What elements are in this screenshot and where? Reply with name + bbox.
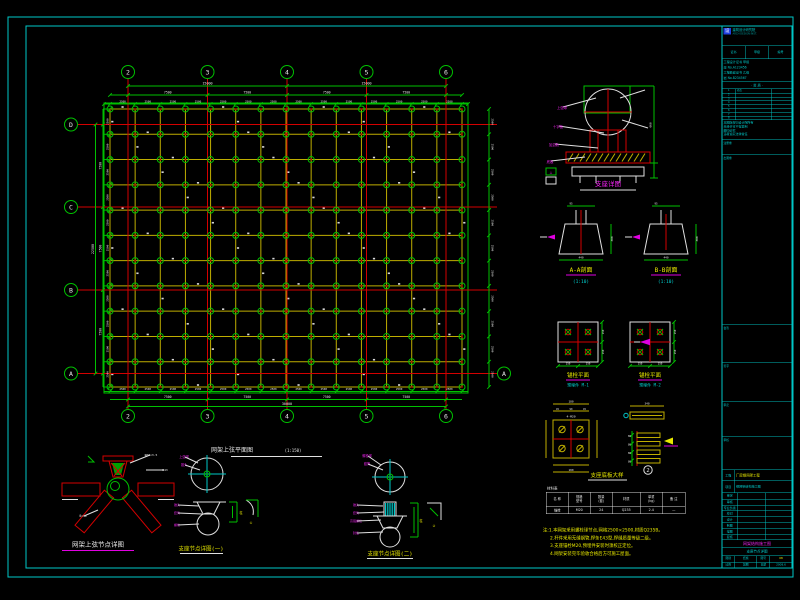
- member-label: [297, 283, 299, 285]
- plan-title: 网架上弦平面图: [211, 446, 253, 454]
- staff-row: 描图: [722, 528, 792, 534]
- axis-label: 2: [126, 68, 130, 76]
- detail-title: 锚栓平面: [639, 371, 662, 379]
- dim-text: 95: [654, 202, 658, 206]
- cad-circle: [639, 331, 640, 332]
- node-center: [361, 209, 363, 211]
- cad-circle: [567, 331, 568, 332]
- table-header-cell: 备 注: [662, 492, 685, 506]
- dim-text: 7500: [99, 328, 103, 336]
- member-label: [348, 131, 350, 133]
- dim-text: 2500: [421, 387, 428, 391]
- axis-label: 2: [126, 412, 130, 420]
- node-center: [285, 209, 287, 211]
- stamp-label: 审核: [722, 437, 792, 442]
- cad-circle: [659, 351, 660, 352]
- bolt-shaft-hatch: [386, 503, 395, 516]
- plan-scale: (1:150): [285, 448, 302, 453]
- cad-circle: [587, 331, 588, 332]
- ball-node: [380, 527, 400, 547]
- node-center: [210, 361, 212, 363]
- node-center: [386, 184, 388, 186]
- node-center: [335, 361, 337, 363]
- node-center: [461, 133, 463, 135]
- notice-line: 违者追究法律责任: [724, 133, 791, 137]
- bottom-label: 图别: [722, 556, 735, 562]
- dim-text: 2500: [144, 387, 151, 391]
- axis-label: 3: [206, 412, 210, 420]
- cad-line: [598, 154, 603, 162]
- node-center: [134, 209, 136, 211]
- member-label: [222, 207, 224, 209]
- stiffener-rib: [637, 433, 660, 438]
- node-center: [260, 234, 262, 236]
- table-header-cell: 单重 (kg): [640, 492, 662, 506]
- axis-label: 4: [285, 68, 289, 76]
- member-label: [111, 121, 113, 123]
- detail-support-elevation: 上弦球 十字板 加劲肋 底板 △ 660 支座详图: [546, 86, 658, 190]
- dim-text: 2500: [371, 100, 378, 104]
- node-center: [411, 108, 413, 110]
- member-label: [438, 323, 440, 325]
- revision-row: 2: [722, 93, 792, 97]
- dim-text: 2500: [491, 270, 495, 277]
- node-center: [461, 184, 463, 186]
- node-center: [436, 310, 438, 312]
- member-label: [463, 222, 465, 224]
- member-label: [413, 171, 415, 173]
- dim-text: 2500: [295, 100, 302, 104]
- titleblock: 设建筑设计研究院ARCH DESIGN INST.证书甲级编号工程设计证书 甲级…: [722, 26, 792, 568]
- axis-bubble: 2: [122, 410, 135, 423]
- member-label: [323, 308, 325, 310]
- detail-support-node-2: 螺栓球 套筒 锥头 套筒 高强螺栓 封板 柱 ② 支座节点详图(二): [350, 453, 441, 559]
- leader-label: 锥头: [181, 462, 188, 467]
- node-center: [386, 386, 388, 388]
- detail-subtitle: 预埋件 M-1: [567, 382, 589, 388]
- titleblock-notice: 本图版权归设计院所有未经许可不得复制翻印必究违者追究法律责任: [722, 120, 792, 140]
- member-label: [161, 298, 163, 300]
- cert-cell: 编号: [769, 46, 793, 59]
- member-label: [136, 146, 138, 148]
- revision-row: 3: [722, 97, 792, 101]
- member-label: [272, 157, 274, 159]
- titleblock-drawing-title: 网架结构施工图: [722, 540, 792, 548]
- revision-row: 1修改: [722, 89, 792, 93]
- dim-text: 2500: [195, 387, 202, 391]
- material-table: 材料表 名 称规格 型号数量 (套)材质单重 (kg)备 注 锚栓M2024Q2…: [546, 486, 698, 528]
- node-center: [310, 159, 312, 161]
- node-center: [335, 285, 337, 287]
- member-label: [363, 121, 365, 123]
- bottom-label: 图号: [757, 556, 770, 562]
- member-label: [262, 146, 264, 148]
- stamp-label: 会签: [722, 325, 792, 330]
- node-center: [310, 285, 312, 287]
- node-center: [310, 108, 312, 110]
- node-center: [210, 260, 212, 262]
- dim-text: 150: [601, 329, 605, 334]
- member-label: [323, 207, 325, 209]
- node-center: [260, 361, 262, 363]
- dim-text: 2500: [106, 270, 110, 277]
- detail-title: 锚栓平面: [567, 371, 590, 379]
- project-value: 厂房钢网架工程: [735, 470, 792, 481]
- node-center: [335, 108, 337, 110]
- note-line: 4.网架安装完毕验收合格后方可施工屋面。: [543, 550, 717, 558]
- node-center: [335, 209, 337, 211]
- member-label: [312, 323, 314, 325]
- member-label: [247, 233, 249, 235]
- member-label: [448, 334, 450, 336]
- staff-row: 审核: [722, 499, 792, 505]
- dim-text: 2500: [421, 100, 428, 104]
- detail-title: 支座节点详图(一): [178, 545, 223, 553]
- titleblock-stamp-box: 审核: [722, 437, 792, 470]
- member-label: [373, 157, 375, 159]
- node-center: [461, 234, 463, 236]
- node-center: [436, 336, 438, 338]
- node-center: [134, 133, 136, 135]
- node-center: [185, 310, 187, 312]
- dim-text: 7500: [99, 162, 103, 170]
- node-center: [285, 159, 287, 161]
- titleblock-cert-cells: 证书甲级编号: [722, 46, 792, 59]
- node-center: [361, 159, 363, 161]
- node-center: [159, 184, 161, 186]
- node-center: [159, 336, 161, 338]
- dim-text: 7500: [402, 90, 410, 94]
- stiffener-rib: [637, 442, 660, 447]
- table-cell: 24: [590, 506, 612, 514]
- member-label: [413, 298, 415, 300]
- dim-text: 90: [570, 408, 573, 411]
- member-label: [111, 247, 113, 249]
- bottom-label: 日期: [757, 563, 770, 569]
- node-center: [335, 234, 337, 236]
- node-center: [361, 361, 363, 363]
- axis-label: A: [502, 370, 506, 378]
- node-center: [134, 184, 136, 186]
- detail-scale: (1:10): [573, 279, 589, 285]
- node-center: [361, 386, 363, 388]
- bottom-value: 如图: [735, 563, 757, 569]
- member-label: [161, 171, 163, 173]
- dim-text: 300: [610, 236, 614, 241]
- leader-label: 套筒: [364, 461, 370, 466]
- node-center: [411, 209, 413, 211]
- dim-text: 2500: [320, 100, 327, 104]
- detail-title: A-A剖面: [570, 266, 593, 274]
- detail-title: 支座节点详图(二): [367, 550, 412, 558]
- node-center: [411, 386, 413, 388]
- axis-bubble: B: [65, 284, 78, 297]
- axis-label: 4: [285, 412, 289, 420]
- node-center: [436, 285, 438, 287]
- node-center: [210, 108, 212, 110]
- detail-lower-chord-node: φ60×3.5 E43 δ=10 网架上弦节点详图: [62, 453, 174, 551]
- leader-label: δ=10: [79, 514, 86, 518]
- node-center: [260, 285, 262, 287]
- node-center: [285, 108, 287, 110]
- node-center: [134, 386, 136, 388]
- member-label: [147, 233, 149, 235]
- dim-text: 15000: [202, 81, 212, 85]
- node-center: [411, 159, 413, 161]
- member-label: [363, 247, 365, 249]
- member-label: [247, 334, 249, 336]
- node-center: [134, 260, 136, 262]
- revision-row: 7: [722, 112, 792, 116]
- cert-cell: 证书: [722, 46, 745, 59]
- dim-text: 300: [695, 236, 699, 241]
- node-center: [310, 386, 312, 388]
- axis-bubble: 6: [440, 66, 453, 79]
- member-label: [448, 233, 450, 235]
- titleblock-grade-divider: · 资 质 ·: [722, 82, 792, 89]
- member-label: [297, 182, 299, 184]
- leader-label: 上弦球: [557, 105, 568, 110]
- detail-subtitle: 预埋件 M-2: [639, 382, 661, 388]
- dim-text: 2500: [491, 144, 495, 151]
- node-center: [386, 159, 388, 161]
- node-center: [436, 159, 438, 161]
- member-label: [373, 359, 375, 361]
- dim-text: 2500: [195, 100, 202, 104]
- revision-row: 5: [722, 105, 792, 109]
- dim-text: 150: [638, 362, 643, 366]
- dim-text: 2500: [320, 387, 327, 391]
- member-label: [187, 197, 189, 199]
- axis-bubble: 3: [201, 66, 214, 79]
- dim-text: 2500: [245, 387, 252, 391]
- node-center: [285, 336, 287, 338]
- member-label: [423, 207, 425, 209]
- plan-view: 2233445566DCBAA1500015000750075007500750…: [65, 66, 511, 423]
- detail-section-aa: 95 300 440 A-A剖面 (1:10): [540, 202, 614, 285]
- node-center: [185, 108, 187, 110]
- dim-text: 660: [649, 122, 653, 127]
- node-center: [235, 209, 237, 211]
- node-center: [285, 361, 287, 363]
- node-center: [235, 234, 237, 236]
- node-center: [285, 386, 287, 388]
- table-header-cell: 材质: [612, 492, 640, 506]
- leader-label: 底板: [547, 159, 554, 164]
- node-center: [210, 310, 212, 312]
- bracket-label: 柱: [239, 510, 243, 515]
- node-center: [235, 133, 237, 135]
- dim-text: 2500: [491, 295, 495, 302]
- axis-bubble: 2: [122, 66, 135, 79]
- member-label: [423, 106, 425, 108]
- node-center: [134, 310, 136, 312]
- node-center: [411, 234, 413, 236]
- dim-text: 7500: [164, 395, 172, 399]
- cad-line: [628, 154, 633, 162]
- axis-label: 5: [365, 412, 369, 420]
- axis-bubble: D: [65, 118, 78, 131]
- dim-text: 2500: [396, 100, 403, 104]
- node-center: [436, 260, 438, 262]
- axis-bubble: 3: [201, 410, 214, 423]
- dim-text: 2500: [245, 100, 252, 104]
- node-center: [310, 361, 312, 363]
- node-center: [285, 234, 287, 236]
- titleblock-project: 工程厂房钢网架工程: [722, 470, 792, 481]
- node-center: [361, 234, 363, 236]
- axis-bubble: 6: [440, 410, 453, 423]
- axis-bubble: 4: [281, 410, 294, 423]
- dim-text: 2500: [119, 387, 126, 391]
- node-center: [159, 209, 161, 211]
- node-center: [310, 260, 312, 262]
- staff-row: 校对: [722, 511, 792, 517]
- dim-text: 2500: [144, 100, 151, 104]
- node-center: [310, 133, 312, 135]
- node-center: [411, 361, 413, 363]
- node-center: [310, 336, 312, 338]
- node-center: [260, 108, 262, 110]
- node-center: [411, 336, 413, 338]
- dim-text: 7500: [243, 395, 251, 399]
- node-center: [310, 184, 312, 186]
- node-center: [185, 285, 187, 287]
- node-center: [361, 285, 363, 287]
- node-center: [411, 285, 413, 287]
- dim-text: 150: [658, 362, 663, 366]
- node-center: [361, 310, 363, 312]
- member-label: [312, 197, 314, 199]
- member-label: [287, 171, 289, 173]
- node-center: [285, 133, 287, 135]
- table-caption: 材料表: [547, 486, 698, 491]
- node-center: [310, 209, 312, 211]
- detail-title: 支座底板大样: [590, 471, 624, 479]
- node-center: [436, 386, 438, 388]
- arrow-marker: [632, 235, 640, 240]
- bottom-value: 2008.6: [770, 563, 792, 569]
- node-center: [185, 386, 187, 388]
- note-line: 注:1.本网架采用螺栓球节点,网格2500×2500,材质Q235B。: [543, 527, 717, 535]
- dim-text: 2500: [106, 244, 110, 251]
- dim-text: 2500: [220, 100, 227, 104]
- node-center: [335, 386, 337, 388]
- node-center: [235, 386, 237, 388]
- dim-text: 2500: [491, 346, 495, 353]
- bottom-row: 比例如图日期2008.6: [722, 562, 792, 568]
- axis-label: 6: [444, 412, 448, 420]
- member-label: [172, 157, 174, 159]
- stamp-label: 审定: [722, 402, 792, 407]
- member-label: [398, 182, 400, 184]
- node-center: [461, 285, 463, 287]
- node-center: [235, 285, 237, 287]
- member-label: [398, 283, 400, 285]
- node-center: [210, 285, 212, 287]
- bolt-count-label: 4-M20: [566, 415, 575, 419]
- dim-text: 22500: [91, 244, 95, 254]
- member-label: [388, 272, 390, 274]
- node-center: [335, 184, 337, 186]
- arrow-marker: [664, 438, 673, 445]
- leader-label: 锥头: [353, 502, 359, 507]
- bracket-label: 柱: [419, 518, 423, 523]
- cad-line: [634, 154, 639, 162]
- leader-label: φ60×3.5: [145, 453, 158, 457]
- dim-text: 80: [628, 460, 632, 464]
- member-label: [197, 182, 199, 184]
- cad-circle: [587, 351, 588, 352]
- dim-text: 2500: [295, 387, 302, 391]
- titleblock-stamp-box: 出图章: [722, 155, 792, 325]
- node-center: [210, 234, 212, 236]
- dim-text: 440: [663, 256, 668, 260]
- node-center: [361, 133, 363, 135]
- node-center: [386, 361, 388, 363]
- cad-line: [592, 154, 597, 162]
- dim-text: 2500: [346, 387, 353, 391]
- dim-text: 2500: [446, 387, 453, 391]
- table-cell: Q235: [612, 506, 640, 514]
- member-label: [272, 258, 274, 260]
- node-center: [210, 133, 212, 135]
- dim-text: 2500: [106, 371, 110, 378]
- staff-row: 审定: [722, 493, 792, 499]
- dim-text: 2500: [220, 387, 227, 391]
- node-center: [134, 361, 136, 363]
- node-center: [185, 234, 187, 236]
- member-label: [187, 323, 189, 325]
- node-center: [436, 184, 438, 186]
- detail-section-bb: 95 300 440 B-B剖面 (1:10): [625, 202, 699, 285]
- member-label: [448, 131, 450, 133]
- node-center: [134, 336, 136, 338]
- dim-text: 180: [568, 400, 573, 404]
- stamp-label: 出图章: [722, 155, 792, 160]
- node-center: [210, 336, 212, 338]
- dim-text: 30000: [282, 402, 292, 406]
- arrow-marker: [547, 235, 555, 240]
- staff-row: 专业负责: [722, 505, 792, 511]
- titleblock-logo: 设建筑设计研究院ARCH DESIGN INST.: [722, 26, 792, 46]
- logo-mark: 设: [724, 28, 732, 35]
- cad-line: [640, 154, 645, 162]
- cad-circle: [567, 351, 568, 352]
- bottom-value: 结施: [735, 556, 757, 562]
- node-center: [260, 310, 262, 312]
- member-label: [197, 283, 199, 285]
- detail-scale: (1:10): [658, 279, 674, 285]
- bottom-value: 08: [770, 556, 792, 562]
- item-value: 钢网架结构施工图: [735, 481, 792, 493]
- axis-bubble: 4: [281, 66, 294, 79]
- member-label: [287, 298, 289, 300]
- staff-row: 制图: [722, 522, 792, 528]
- node-center: [386, 234, 388, 236]
- node-center: [260, 386, 262, 388]
- dim-text: 7500: [323, 90, 331, 94]
- node-center: [159, 108, 161, 110]
- node-center: [235, 260, 237, 262]
- node-center: [235, 159, 237, 161]
- node-center: [461, 361, 463, 363]
- node-center: [361, 184, 363, 186]
- titleblock-staff: 审定审核专业负责校对设计制图描图复核: [722, 493, 792, 540]
- node-center: [235, 361, 237, 363]
- titleblock-drawing-sub: 支座节点详图: [722, 548, 792, 556]
- dim-text: 2500: [106, 295, 110, 302]
